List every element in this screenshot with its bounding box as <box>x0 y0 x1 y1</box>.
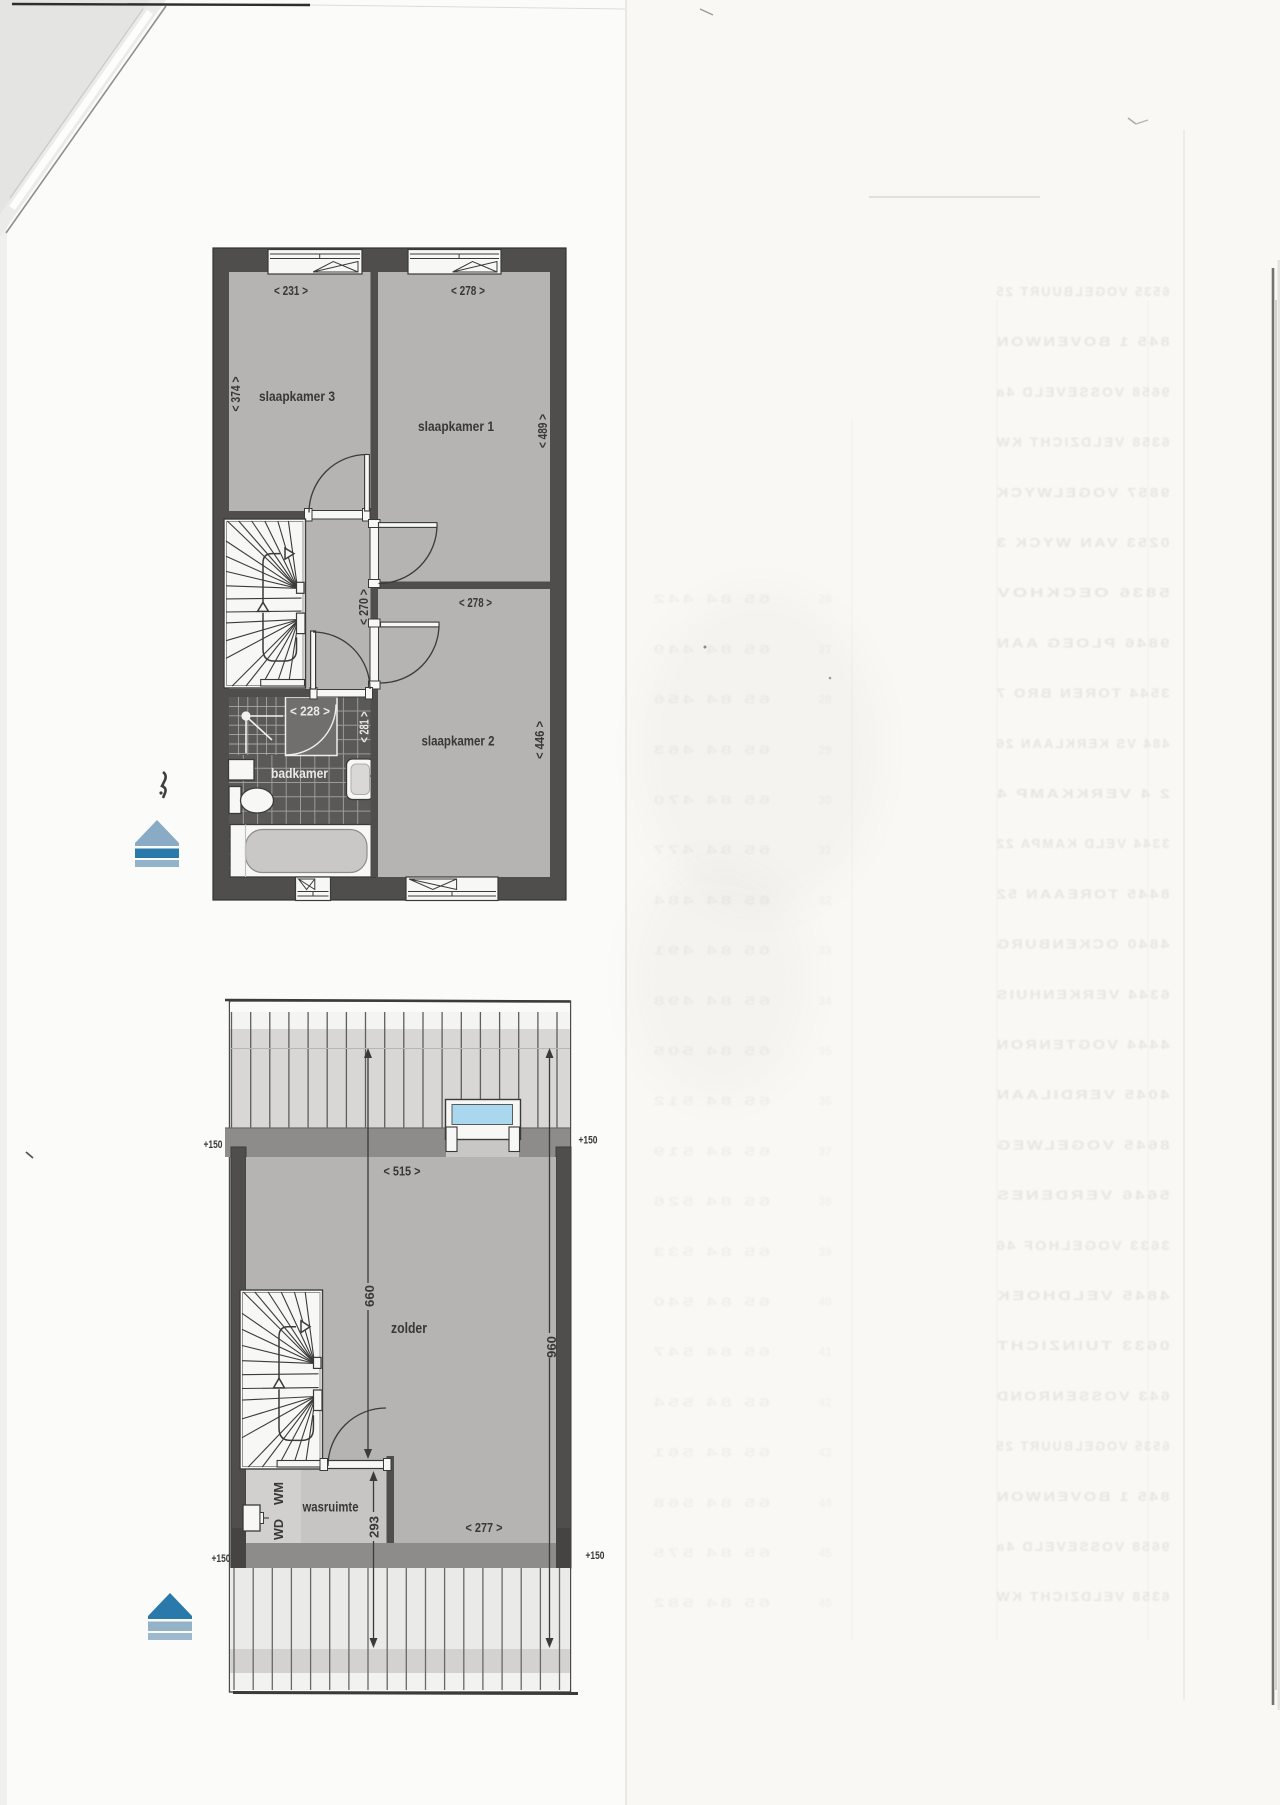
svg-text:6344 VERKENHUIS: 6344 VERKENHUIS <box>995 988 1170 1002</box>
svg-text:6358 VELDZICHT KW: 6358 VELDZICHT KW <box>995 1590 1170 1604</box>
svg-text:+150: +150 <box>212 1553 231 1565</box>
svg-text:6358 VELDZICHT KW: 6358 VELDZICHT KW <box>995 436 1170 450</box>
svg-text:WM: WM <box>272 1482 286 1505</box>
svg-text:40: 40 <box>818 1295 832 1309</box>
svg-text:3544 TOREN BRO 7: 3544 TOREN BRO 7 <box>995 687 1170 701</box>
svg-text:< 277 >: < 277 > <box>466 1520 503 1535</box>
svg-text:badkamer: badkamer <box>271 766 329 781</box>
svg-text:0633 TUINZICHT: 0633 TUINZICHT <box>995 1339 1170 1353</box>
svg-text:< 515 >: < 515 > <box>384 1164 421 1179</box>
svg-text:5836 OECKHOV: 5836 OECKHOV <box>995 586 1170 600</box>
svg-text:32: 32 <box>818 893 832 907</box>
svg-text:34: 34 <box>818 994 832 1008</box>
svg-text:9857 VOGELWYCK: 9857 VOGELWYCK <box>995 486 1170 500</box>
svg-text:65 84 554: 65 84 554 <box>650 1395 770 1409</box>
svg-text:643 VOSSENROND: 643 VOSSENROND <box>995 1389 1170 1403</box>
svg-text:< 231 >: < 231 > <box>274 283 308 298</box>
svg-text:3344 VELD KAMPA 22: 3344 VELD KAMPA 22 <box>995 837 1170 851</box>
svg-text:0253 VAN WYCK 3: 0253 VAN WYCK 3 <box>995 536 1170 550</box>
svg-text:4444 VOGTENRON: 4444 VOGTENRON <box>995 1038 1170 1052</box>
svg-text:35: 35 <box>818 1044 832 1058</box>
svg-text:4845 VELDHOEK: 4845 VELDHOEK <box>995 1289 1170 1303</box>
svg-text:+150: +150 <box>586 1550 605 1562</box>
svg-text:44: 44 <box>818 1496 832 1510</box>
svg-text:45: 45 <box>818 1546 832 1560</box>
svg-text:65 84 526: 65 84 526 <box>650 1195 770 1209</box>
svg-text:37: 37 <box>818 1144 832 1158</box>
svg-text:4840 OCKENBURG: 4840 OCKENBURG <box>995 938 1170 952</box>
svg-text:9658 VOSSEVELD 4a: 9658 VOSSEVELD 4a <box>995 385 1170 399</box>
svg-text:845 1 BOVENWON: 845 1 BOVENWON <box>995 335 1170 349</box>
svg-text:65 84 575: 65 84 575 <box>650 1546 770 1560</box>
svg-text:43: 43 <box>818 1446 832 1460</box>
svg-text:< 281 >: < 281 > <box>358 712 372 743</box>
svg-text:42: 42 <box>818 1395 832 1409</box>
svg-text:660: 660 <box>362 1285 377 1307</box>
svg-text:41: 41 <box>818 1345 832 1359</box>
svg-text:26: 26 <box>818 592 832 606</box>
svg-text:33: 33 <box>818 944 832 958</box>
svg-text:6535 VOGELBUURT 25: 6535 VOGELBUURT 25 <box>995 1440 1170 1454</box>
svg-text:9658 VOSSEVELD 4a: 9658 VOSSEVELD 4a <box>995 1540 1170 1554</box>
svg-text:38: 38 <box>818 1195 832 1209</box>
svg-text:3633 VOGELHOF 46: 3633 VOGELHOF 46 <box>995 1239 1170 1253</box>
svg-text:zolder: zolder <box>391 1320 427 1337</box>
svg-text:< 446 >: < 446 > <box>532 721 547 759</box>
svg-text:< 489 >: < 489 > <box>535 414 550 448</box>
svg-text:36: 36 <box>818 1094 832 1108</box>
svg-text:2 4 VERKKAMP 4: 2 4 VERKKAMP 4 <box>995 787 1170 801</box>
svg-text:< 374 >: < 374 > <box>228 376 243 411</box>
svg-text:46: 46 <box>818 1596 832 1610</box>
svg-text:WD: WD <box>272 1519 286 1540</box>
svg-text:65 84 568: 65 84 568 <box>650 1496 770 1510</box>
svg-text:slaapkamer 3: slaapkamer 3 <box>259 388 335 404</box>
svg-text:845 1 BOVENWON: 845 1 BOVENWON <box>995 1490 1170 1504</box>
svg-text:< 228 >: < 228 > <box>290 704 330 719</box>
svg-text:960: 960 <box>544 1336 559 1358</box>
svg-text:+150: +150 <box>579 1135 598 1147</box>
svg-text:484 VS KERKLAAN 26: 484 VS KERKLAAN 26 <box>995 737 1170 751</box>
svg-text:< 278 >: < 278 > <box>459 595 492 610</box>
svg-text:65 84 519: 65 84 519 <box>650 1144 770 1158</box>
svg-text:+150: +150 <box>204 1139 223 1151</box>
svg-text:5646 VERDENES: 5646 VERDENES <box>995 1189 1170 1203</box>
svg-text:6535 VOGELBUURT 25: 6535 VOGELBUURT 25 <box>995 285 1170 299</box>
svg-text:9846 PLOEG AAN: 9846 PLOEG AAN <box>995 636 1170 650</box>
svg-text:65 84 547: 65 84 547 <box>650 1345 770 1359</box>
svg-text:39: 39 <box>818 1245 832 1259</box>
svg-text:slaapkamer 1: slaapkamer 1 <box>418 418 494 434</box>
svg-text:65 84 561: 65 84 561 <box>650 1446 770 1460</box>
svg-text:wasruimte: wasruimte <box>302 1500 359 1515</box>
svg-text:293: 293 <box>367 1516 382 1538</box>
svg-text:4045 VERDILAAN: 4045 VERDILAAN <box>995 1088 1170 1102</box>
svg-text:slaapkamer 2: slaapkamer 2 <box>422 733 495 749</box>
svg-text:8645 VOGELWEG: 8645 VOGELWEG <box>995 1138 1170 1152</box>
svg-text:65 84 540: 65 84 540 <box>650 1295 770 1309</box>
svg-text:65 84 582: 65 84 582 <box>650 1596 770 1610</box>
svg-text:< 270 >: < 270 > <box>356 589 371 625</box>
svg-text:65 84 533: 65 84 533 <box>650 1245 770 1259</box>
svg-text:< 278 >: < 278 > <box>451 283 485 298</box>
svg-text:8445 TOREAAN 52: 8445 TOREAAN 52 <box>995 887 1170 901</box>
